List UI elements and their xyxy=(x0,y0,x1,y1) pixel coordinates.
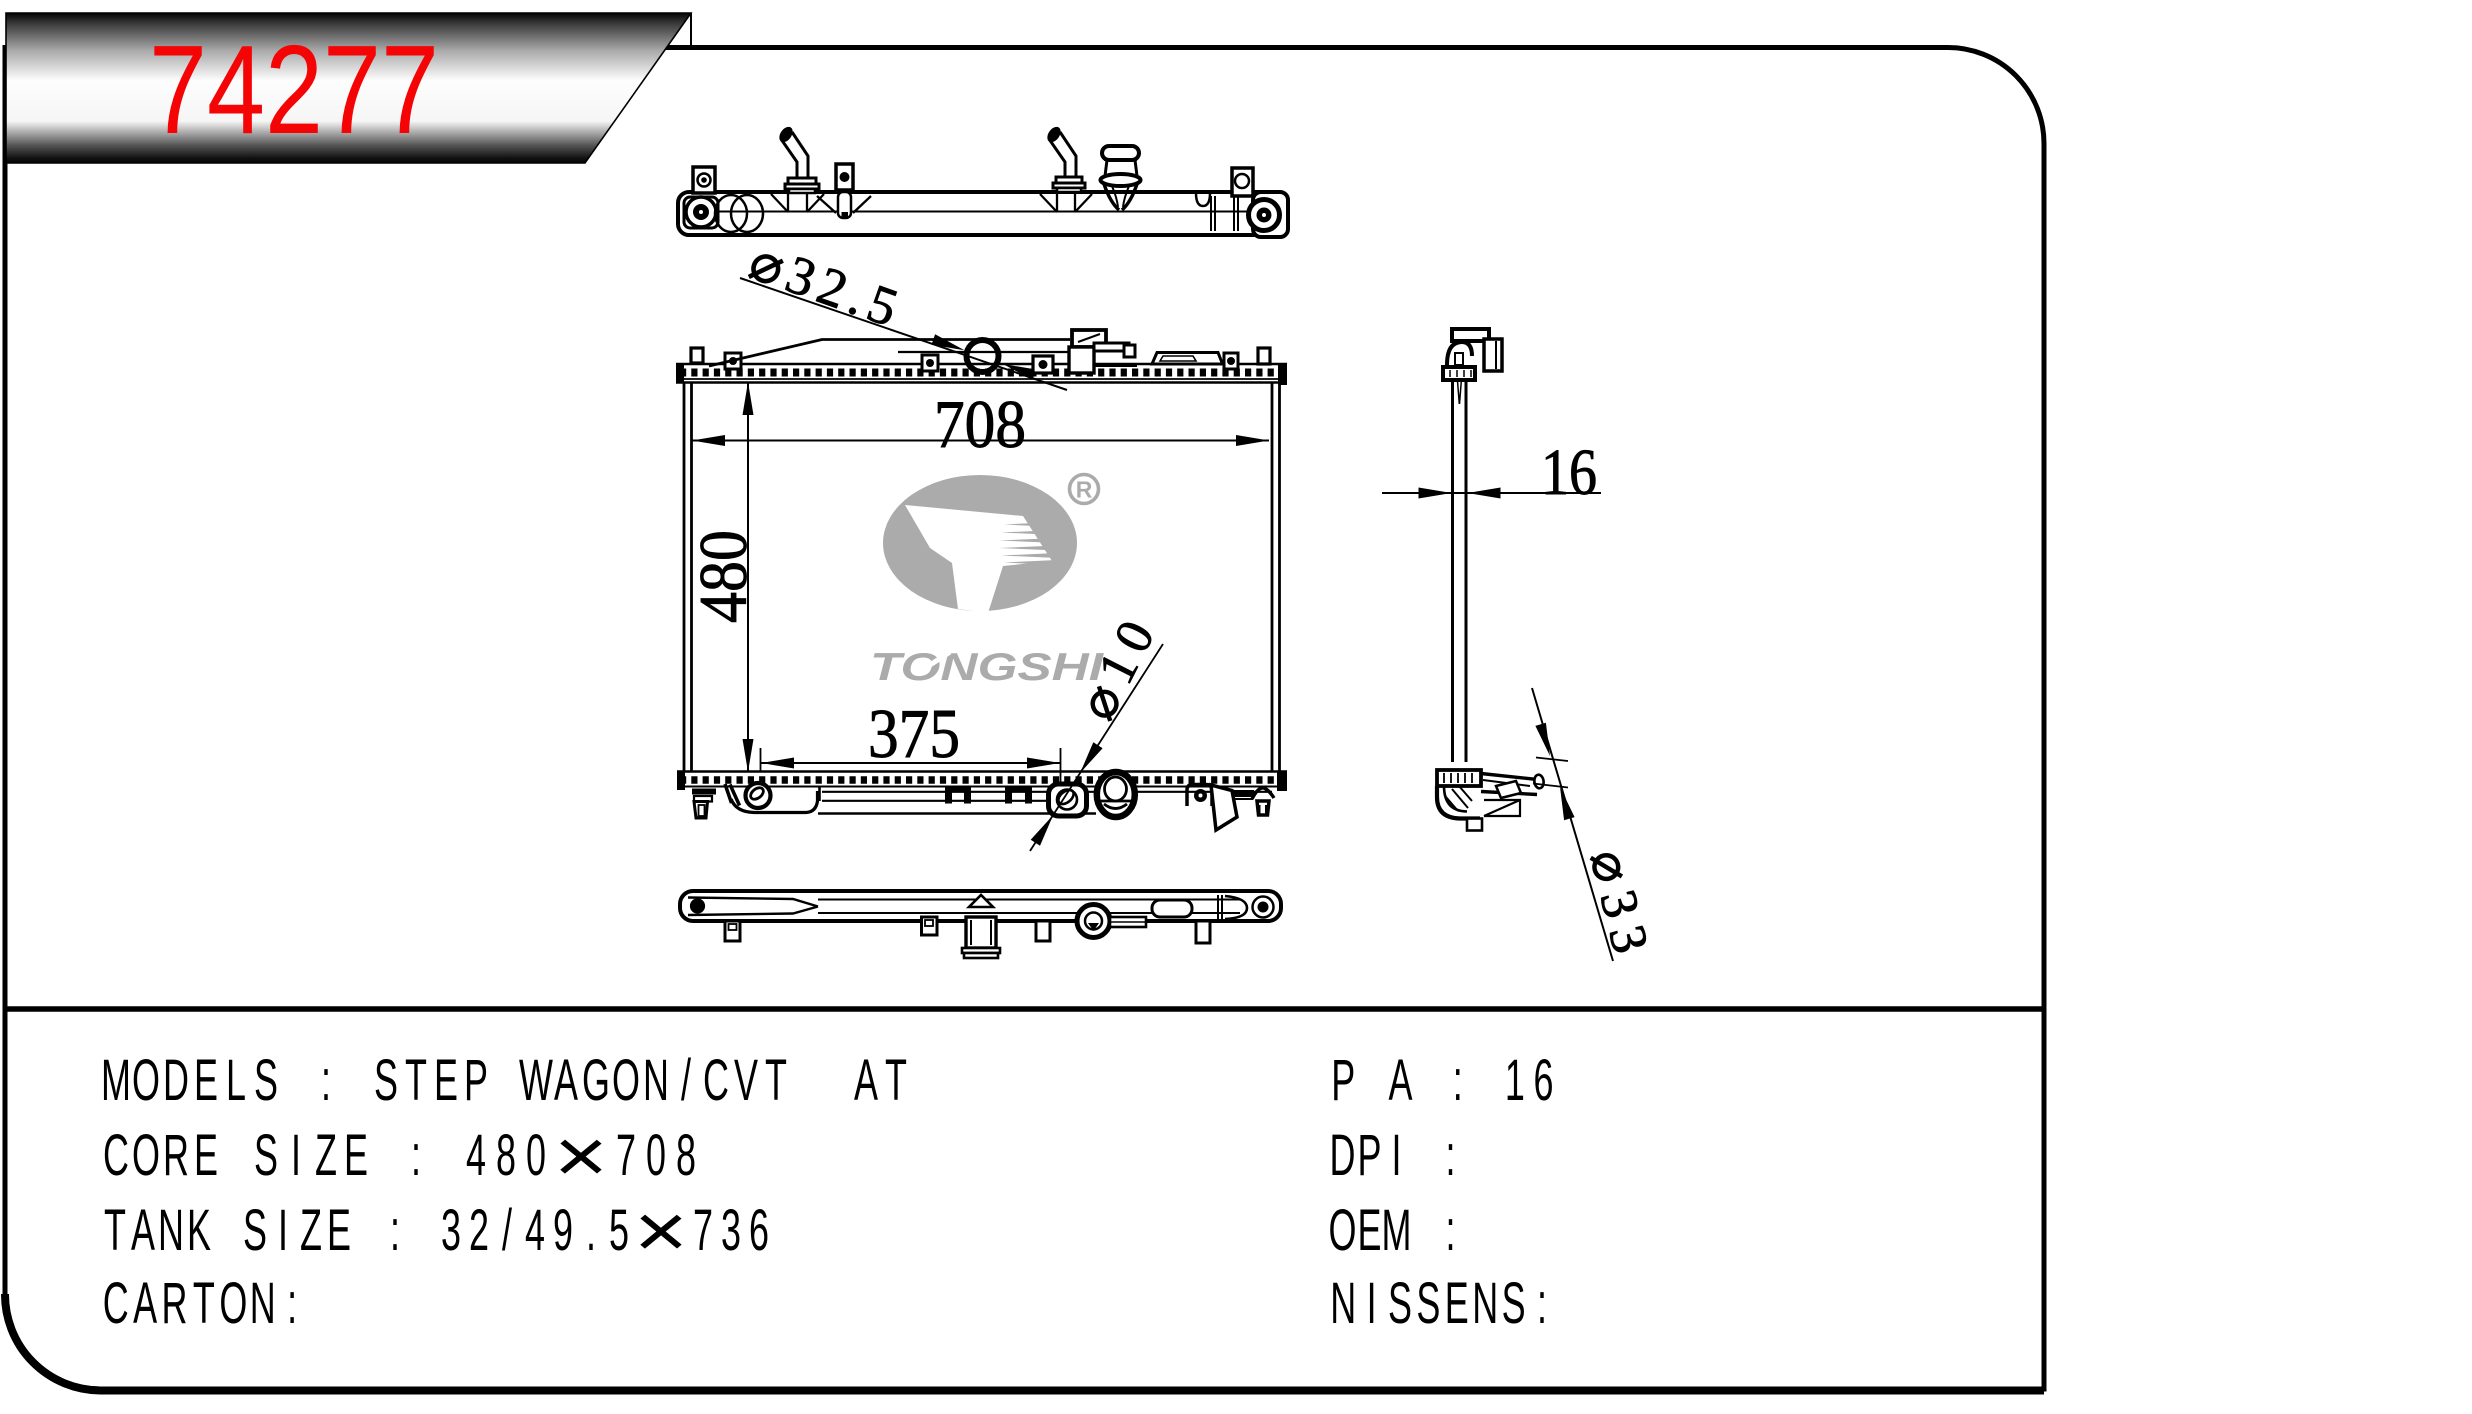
svg-text:O: O xyxy=(219,1271,247,1336)
svg-text:C: C xyxy=(103,1271,129,1336)
svg-text::: : xyxy=(411,1123,421,1188)
svg-text:⌀33: ⌀33 xyxy=(1578,844,1658,959)
svg-text:W: W xyxy=(519,1048,553,1113)
svg-text:C: C xyxy=(703,1048,729,1113)
svg-text:708: 708 xyxy=(934,386,1026,462)
svg-text:8: 8 xyxy=(496,1123,516,1188)
svg-text:6: 6 xyxy=(1533,1048,1553,1113)
svg-text:N: N xyxy=(158,1198,184,1263)
svg-text:.: . xyxy=(586,1198,596,1263)
svg-text:T: T xyxy=(104,1198,126,1263)
svg-text:E: E xyxy=(327,1198,351,1263)
svg-text:P: P xyxy=(1331,1048,1355,1113)
svg-text::: : xyxy=(1446,1198,1456,1263)
svg-text:2: 2 xyxy=(469,1198,489,1263)
svg-text:6: 6 xyxy=(749,1198,769,1263)
svg-text:TONGSHI: TONGSHI xyxy=(870,646,1105,689)
svg-text:4: 4 xyxy=(525,1198,545,1263)
svg-text:16: 16 xyxy=(1541,436,1597,509)
svg-text:M: M xyxy=(101,1048,131,1113)
svg-text:R: R xyxy=(162,1271,188,1336)
svg-text:S: S xyxy=(254,1048,278,1113)
svg-text:7: 7 xyxy=(616,1123,636,1188)
svg-text:⌀32.5: ⌀32.5 xyxy=(742,231,905,338)
svg-text:O: O xyxy=(132,1048,160,1113)
svg-text::: : xyxy=(287,1271,297,1336)
svg-text:480: 480 xyxy=(685,530,761,623)
svg-text:E: E xyxy=(344,1123,368,1188)
svg-text:K: K xyxy=(187,1198,211,1263)
svg-text:I: I xyxy=(291,1123,301,1188)
svg-text:O: O xyxy=(132,1123,160,1188)
svg-text:E: E xyxy=(1445,1271,1469,1336)
svg-text:O: O xyxy=(1329,1198,1357,1263)
svg-text:N: N xyxy=(643,1048,669,1113)
svg-text:S: S xyxy=(374,1048,398,1113)
svg-text:E: E xyxy=(194,1048,218,1113)
svg-text:D: D xyxy=(1330,1123,1356,1188)
svg-text:G: G xyxy=(582,1048,610,1113)
svg-text:A: A xyxy=(131,1198,156,1263)
svg-text::: : xyxy=(1446,1123,1456,1188)
svg-text:R: R xyxy=(1076,477,1093,503)
svg-text:A: A xyxy=(133,1271,158,1336)
svg-text:L: L xyxy=(226,1048,246,1113)
svg-text::: : xyxy=(1537,1271,1547,1336)
svg-text:1: 1 xyxy=(1505,1048,1525,1113)
svg-text:0: 0 xyxy=(646,1123,666,1188)
svg-text:5: 5 xyxy=(609,1198,629,1263)
svg-text:T: T xyxy=(885,1048,907,1113)
svg-text:R: R xyxy=(163,1123,189,1188)
svg-text:7: 7 xyxy=(693,1198,713,1263)
svg-text:/: / xyxy=(502,1198,512,1263)
svg-text:I: I xyxy=(278,1198,288,1263)
svg-text:P: P xyxy=(1358,1123,1382,1188)
svg-text:375: 375 xyxy=(868,696,960,773)
svg-text:A: A xyxy=(854,1048,879,1113)
svg-text::: : xyxy=(321,1048,331,1113)
svg-text:S: S xyxy=(243,1198,267,1263)
svg-text:/: / xyxy=(681,1048,691,1113)
svg-text:N: N xyxy=(250,1271,276,1336)
svg-text:V: V xyxy=(734,1048,758,1113)
svg-text:×: × xyxy=(554,1113,608,1198)
svg-text:S: S xyxy=(254,1123,278,1188)
svg-text:T: T xyxy=(405,1048,427,1113)
svg-text:M: M xyxy=(1382,1198,1412,1263)
svg-text:S: S xyxy=(1502,1271,1526,1336)
svg-text:T: T xyxy=(193,1271,215,1336)
svg-text:A: A xyxy=(554,1048,579,1113)
svg-text:9: 9 xyxy=(553,1198,573,1263)
svg-text:E: E xyxy=(194,1123,218,1188)
svg-text:0: 0 xyxy=(526,1123,546,1188)
svg-text:74277: 74277 xyxy=(149,19,439,160)
svg-text:S: S xyxy=(1416,1271,1440,1336)
svg-text:Z: Z xyxy=(300,1198,322,1263)
svg-text:E: E xyxy=(1358,1198,1382,1263)
svg-text:Z: Z xyxy=(315,1123,337,1188)
svg-text:N: N xyxy=(1330,1271,1356,1336)
svg-text:D: D xyxy=(163,1048,189,1113)
svg-text:4: 4 xyxy=(466,1123,486,1188)
svg-text:3: 3 xyxy=(721,1198,741,1263)
svg-text:I: I xyxy=(1392,1123,1402,1188)
svg-text:A: A xyxy=(1389,1048,1414,1113)
svg-text:3: 3 xyxy=(441,1198,461,1263)
svg-text:E: E xyxy=(434,1048,458,1113)
svg-text:C: C xyxy=(103,1123,129,1188)
svg-text::: : xyxy=(1453,1048,1463,1113)
svg-text:O: O xyxy=(612,1048,640,1113)
svg-text:I: I xyxy=(1367,1271,1377,1336)
svg-text:N: N xyxy=(1472,1271,1498,1336)
svg-text:P: P xyxy=(464,1048,488,1113)
svg-text:×: × xyxy=(634,1188,688,1273)
svg-text:S: S xyxy=(1388,1271,1412,1336)
svg-text:T: T xyxy=(765,1048,787,1113)
svg-text:8: 8 xyxy=(676,1123,696,1188)
svg-text::: : xyxy=(390,1198,400,1263)
